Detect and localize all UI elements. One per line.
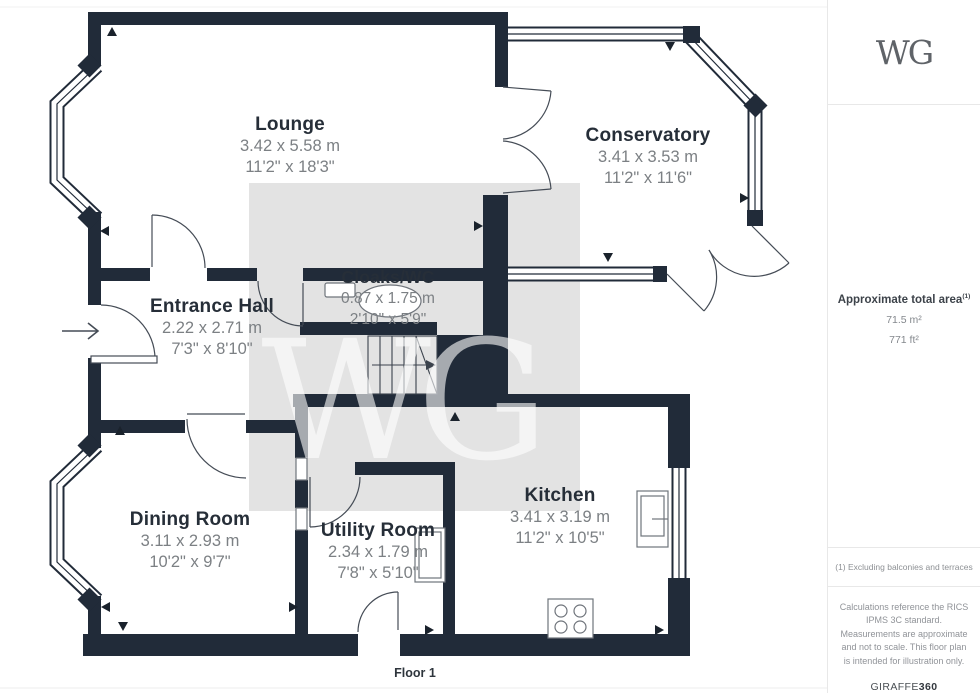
room-dim-imperial: 2'10" x 5'9"	[341, 309, 435, 330]
area-value-ft2: 771 ft²	[828, 334, 980, 346]
room-label-cloaks-wc: Cloaks/WC 0.87 x 1.75 m 2'10" x 5'9"	[341, 266, 435, 330]
disclaimer-text: Calculations reference the RICS IPMS 3C …	[838, 601, 970, 669]
room-label-kitchen: Kitchen 3.41 x 3.19 m 11'2" x 10'5"	[510, 485, 610, 549]
logo-box: WG	[828, 0, 980, 105]
floorplan-area: WG Lounge 3.42 x 5.58 m 11'2" x 18'3" Co…	[0, 0, 827, 693]
camera-marker-icon	[100, 226, 109, 236]
area-title-text: Approximate total area	[838, 294, 963, 306]
room-dim-metric: 3.11 x 2.93 m	[130, 531, 250, 552]
sink-icon	[637, 491, 668, 547]
room-name: Dining Room	[130, 509, 250, 531]
camera-marker-icon	[603, 253, 613, 262]
room-dim-imperial: 7'3" x 8'10"	[150, 339, 274, 360]
room-dim-imperial: 11'2" x 18'3"	[240, 157, 340, 178]
floorplan-page: WG Lounge 3.42 x 5.58 m 11'2" x 18'3" Co…	[0, 0, 980, 693]
room-dim-metric: 2.22 x 2.71 m	[150, 318, 274, 339]
room-dim-imperial: 7'8" x 5'10"	[321, 563, 435, 584]
room-name: Cloaks/WC	[341, 266, 435, 288]
floor-label: Floor 1	[394, 666, 436, 680]
wg-logo: WG	[876, 33, 932, 72]
room-label-dining-room: Dining Room 3.11 x 2.93 m 10'2" x 9'7"	[130, 509, 250, 573]
room-label-utility-room: Utility Room 2.34 x 1.79 m 7'8" x 5'10"	[321, 520, 435, 584]
room-name: Lounge	[240, 114, 340, 136]
watermark-text: WG	[261, 305, 536, 497]
room-dim-metric: 3.41 x 3.19 m	[510, 507, 610, 528]
room-dim-imperial: 11'2" x 11'6"	[586, 168, 711, 189]
info-sidebar: WG Approximate total area(1) 71.5 m² 771…	[827, 0, 980, 693]
area-title-superscript: (1)	[962, 293, 970, 300]
area-value-m2: 71.5 m²	[828, 314, 980, 326]
room-label-conservatory: Conservatory 3.41 x 3.53 m 11'2" x 11'6"	[586, 125, 711, 189]
room-dim-imperial: 10'2" x 9'7"	[130, 552, 250, 573]
camera-marker-icon	[107, 27, 117, 36]
camera-marker-icon	[655, 625, 664, 635]
hob-icon	[548, 599, 593, 638]
room-dim-metric: 3.41 x 3.53 m	[586, 147, 711, 168]
area-title: Approximate total area(1)	[828, 293, 980, 306]
camera-marker-icon	[118, 622, 128, 631]
disclaimer-panel: Calculations reference the RICS IPMS 3C …	[828, 587, 980, 693]
exclusion-note: (1) Excluding balconies and terraces	[828, 548, 980, 587]
entrance-arrow-icon	[62, 323, 98, 339]
room-name: Entrance Hall	[150, 296, 274, 318]
room-dim-metric: 3.42 x 5.58 m	[240, 136, 340, 157]
floorplan-svg: WG	[0, 0, 827, 693]
camera-marker-icon	[665, 42, 675, 51]
camera-marker-icon	[101, 602, 110, 612]
room-label-lounge: Lounge 3.42 x 5.58 m 11'2" x 18'3"	[240, 114, 340, 178]
room-name: Conservatory	[586, 125, 711, 147]
brand-number: 360	[919, 681, 938, 693]
brand-name: GIRAFFE	[870, 681, 918, 693]
giraffe360-brand: GIRAFFE360	[838, 681, 970, 693]
room-dim-imperial: 11'2" x 10'5"	[510, 528, 610, 549]
room-label-entrance-hall: Entrance Hall 2.22 x 2.71 m 7'3" x 8'10"	[150, 296, 274, 360]
room-name: Kitchen	[510, 485, 610, 507]
room-name: Utility Room	[321, 520, 435, 542]
dining-hatch	[296, 508, 307, 530]
room-dim-metric: 0.87 x 1.75 m	[341, 288, 435, 309]
room-dim-metric: 2.34 x 1.79 m	[321, 542, 435, 563]
area-panel: Approximate total area(1) 71.5 m² 771 ft…	[828, 105, 980, 548]
camera-marker-icon	[425, 625, 434, 635]
